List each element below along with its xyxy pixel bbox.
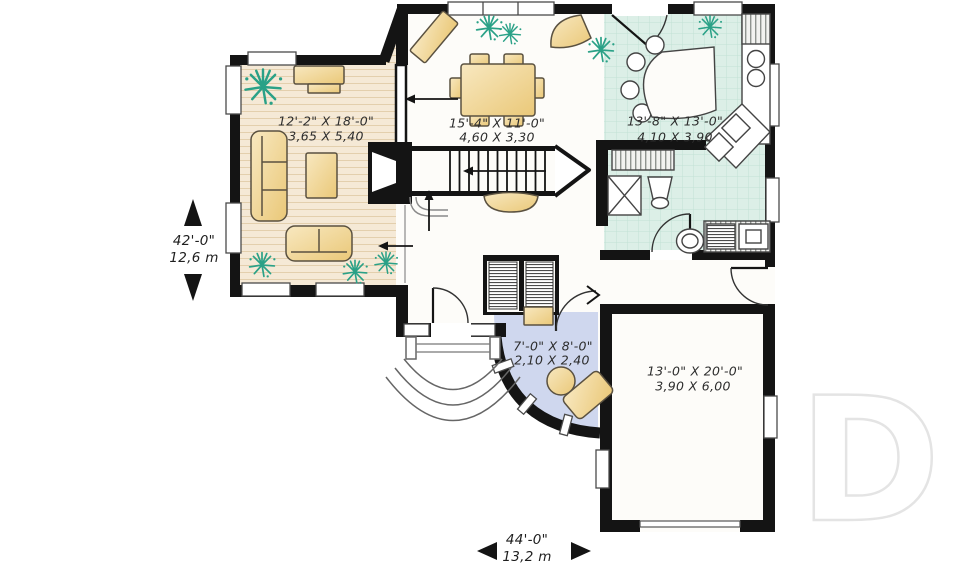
overall-width-imperial: 44'-0" (506, 532, 548, 548)
den-cabinet-icon (524, 307, 553, 325)
floor-plan-page: D (0, 0, 960, 569)
washer-icon (707, 224, 735, 249)
living-room-size-imperial: 12'-2" X 18'-0" (278, 114, 374, 129)
floor-plan-canvas: D (0, 0, 960, 569)
kitchen-size-metric: 4,10 X 3,90 (637, 130, 712, 145)
loveseat-icon (286, 226, 352, 261)
shower-icon (608, 176, 641, 215)
dining-room-size-imperial: 15'-4" X 11'-0" (449, 116, 545, 131)
overall-depth-metric: 12,6 m (169, 250, 218, 266)
closet-icon (483, 255, 559, 315)
garage-size-imperial: 13'-0" X 20'-0" (647, 364, 743, 379)
den-size-metric: 2,10 X 2,40 (514, 353, 589, 368)
breakfast-table-icon (644, 47, 716, 118)
toilet-icon (677, 229, 704, 253)
railing (396, 65, 406, 146)
porch-steps-icon (386, 337, 520, 421)
dining-room-size-metric: 4,60 X 3,30 (459, 130, 534, 145)
overall-width-metric: 13,2 m (502, 549, 551, 565)
pedestal-sink-icon (648, 177, 672, 209)
overall-depth-imperial: 42'-0" (173, 233, 215, 249)
den-size-imperial: 7'-0" X 8'-0" (513, 339, 593, 354)
hall-table-icon (484, 193, 538, 213)
watermark-letter: D (798, 360, 941, 561)
kitchen-size-imperial: 13'-8" X 13'-0" (627, 114, 723, 129)
sofa-icon (251, 131, 287, 221)
living-room-size-metric: 3,65 X 5,40 (288, 129, 363, 144)
kitchen-sink-icon (748, 51, 765, 68)
coffee-table-icon (306, 153, 337, 198)
fireplace-icon (368, 142, 412, 204)
garage-size-metric: 3,90 X 6,00 (655, 379, 730, 394)
dining-table-icon (461, 64, 535, 116)
kitchen-sink-icon (748, 70, 765, 87)
